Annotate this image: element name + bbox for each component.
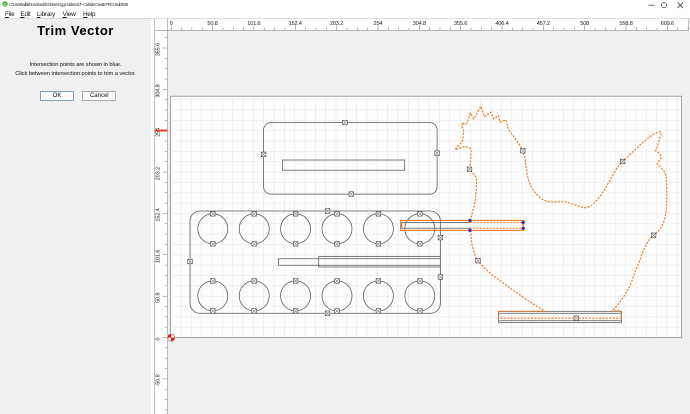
- svg-text:152.4: 152.4: [289, 21, 302, 27]
- svg-text:203.2: 203.2: [330, 21, 343, 27]
- svg-text:101.6: 101.6: [247, 21, 260, 27]
- svg-text:508: 508: [580, 21, 589, 27]
- svg-text:254: 254: [374, 21, 383, 27]
- svg-text:609.6: 609.6: [661, 21, 674, 27]
- svg-text:0: 0: [155, 338, 161, 341]
- svg-text:0: 0: [170, 21, 173, 27]
- svg-text:-50.8: -50.8: [155, 374, 161, 386]
- svg-text:558.8: 558.8: [619, 21, 632, 27]
- svg-text:203.2: 203.2: [155, 167, 161, 180]
- svg-text:406.4: 406.4: [495, 21, 508, 27]
- svg-text:457.2: 457.2: [537, 21, 550, 27]
- svg-text:304.8: 304.8: [155, 84, 161, 97]
- svg-text:254: 254: [155, 128, 161, 137]
- svg-text:152.4: 152.4: [155, 208, 161, 221]
- svg-text:355.6: 355.6: [155, 43, 161, 56]
- svg-text:50.8: 50.8: [207, 21, 217, 27]
- svg-text:50.8: 50.8: [155, 293, 161, 303]
- svg-text:304.8: 304.8: [413, 21, 426, 27]
- svg-text:355.6: 355.6: [454, 21, 467, 27]
- svg-text:101.6: 101.6: [155, 250, 161, 263]
